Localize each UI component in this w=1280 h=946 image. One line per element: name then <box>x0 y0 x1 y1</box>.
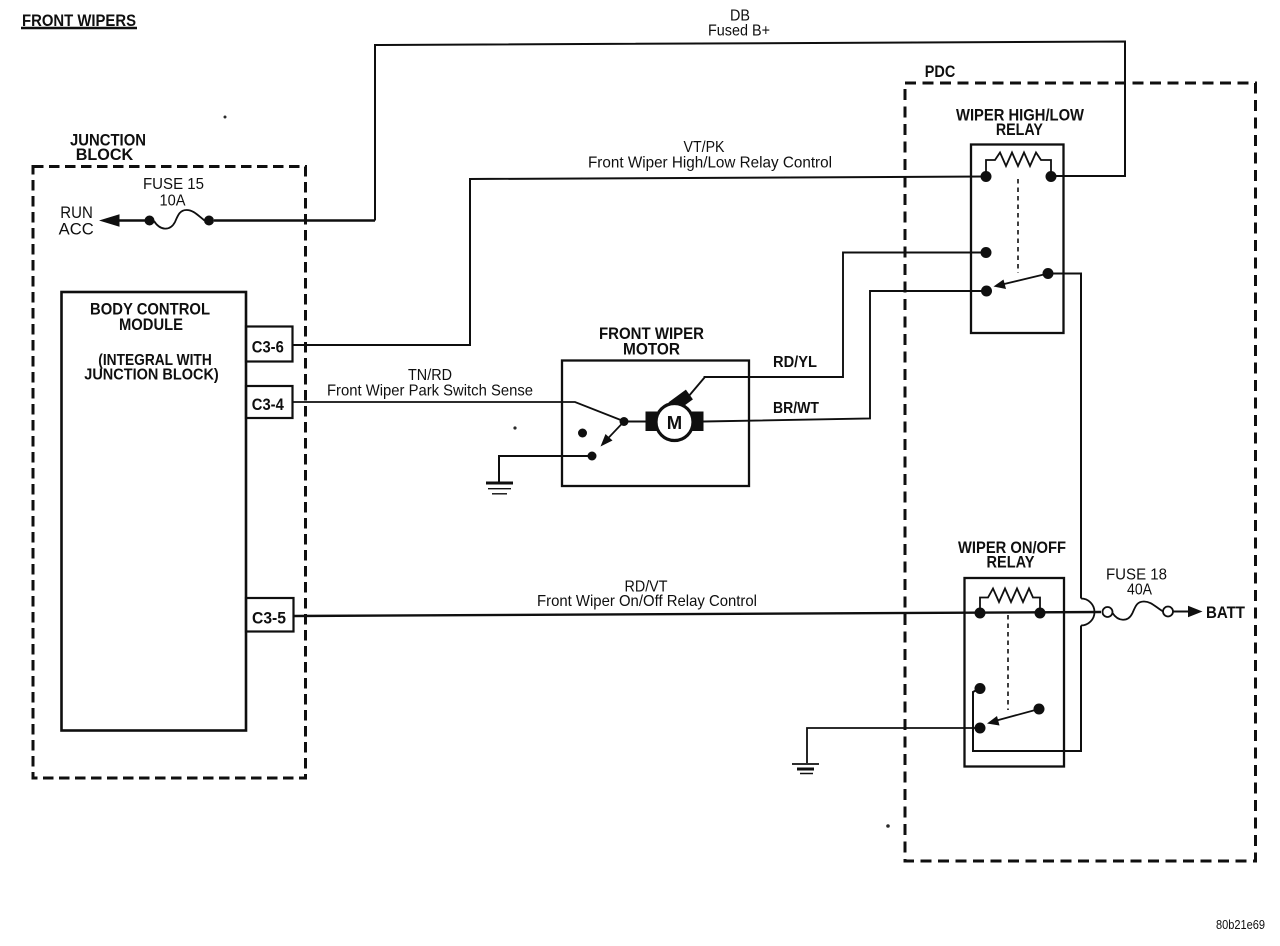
svg-text:Front Wiper Park Switch Sense: Front Wiper Park Switch Sense <box>327 382 533 399</box>
svg-text:ACC: ACC <box>59 220 94 238</box>
svg-text:Front Wiper On/Off Relay Contr: Front Wiper On/Off Relay Control <box>537 593 757 610</box>
svg-text:M: M <box>667 412 682 433</box>
svg-text:80b21e69: 80b21e69 <box>1216 918 1265 932</box>
svg-text:BR/WT: BR/WT <box>773 400 819 417</box>
svg-text:JUNCTION BLOCK): JUNCTION BLOCK) <box>84 367 219 384</box>
svg-text:Front Wiper High/Low Relay Con: Front Wiper High/Low Relay Control <box>588 155 832 172</box>
svg-text:C3-6: C3-6 <box>252 338 284 356</box>
svg-text:VT/PK: VT/PK <box>684 139 725 156</box>
svg-text:FUSE 15: FUSE 15 <box>143 176 204 193</box>
svg-text:RD/YL: RD/YL <box>773 354 817 371</box>
svg-text:MOTOR: MOTOR <box>623 340 680 358</box>
svg-text:RELAY: RELAY <box>996 121 1043 139</box>
svg-text:10A: 10A <box>160 193 186 210</box>
svg-text:C3-5: C3-5 <box>252 609 286 627</box>
svg-text:C3-4: C3-4 <box>252 396 285 414</box>
svg-text:Fused B+: Fused B+ <box>708 23 770 40</box>
svg-text:RELAY: RELAY <box>987 553 1035 571</box>
svg-text:PDC: PDC <box>925 63 956 81</box>
svg-text:BLOCK: BLOCK <box>76 146 134 164</box>
svg-text:RUN: RUN <box>60 204 93 222</box>
svg-text:BATT: BATT <box>1206 604 1245 622</box>
svg-text:MODULE: MODULE <box>119 316 183 334</box>
svg-text:40A: 40A <box>1127 581 1152 598</box>
